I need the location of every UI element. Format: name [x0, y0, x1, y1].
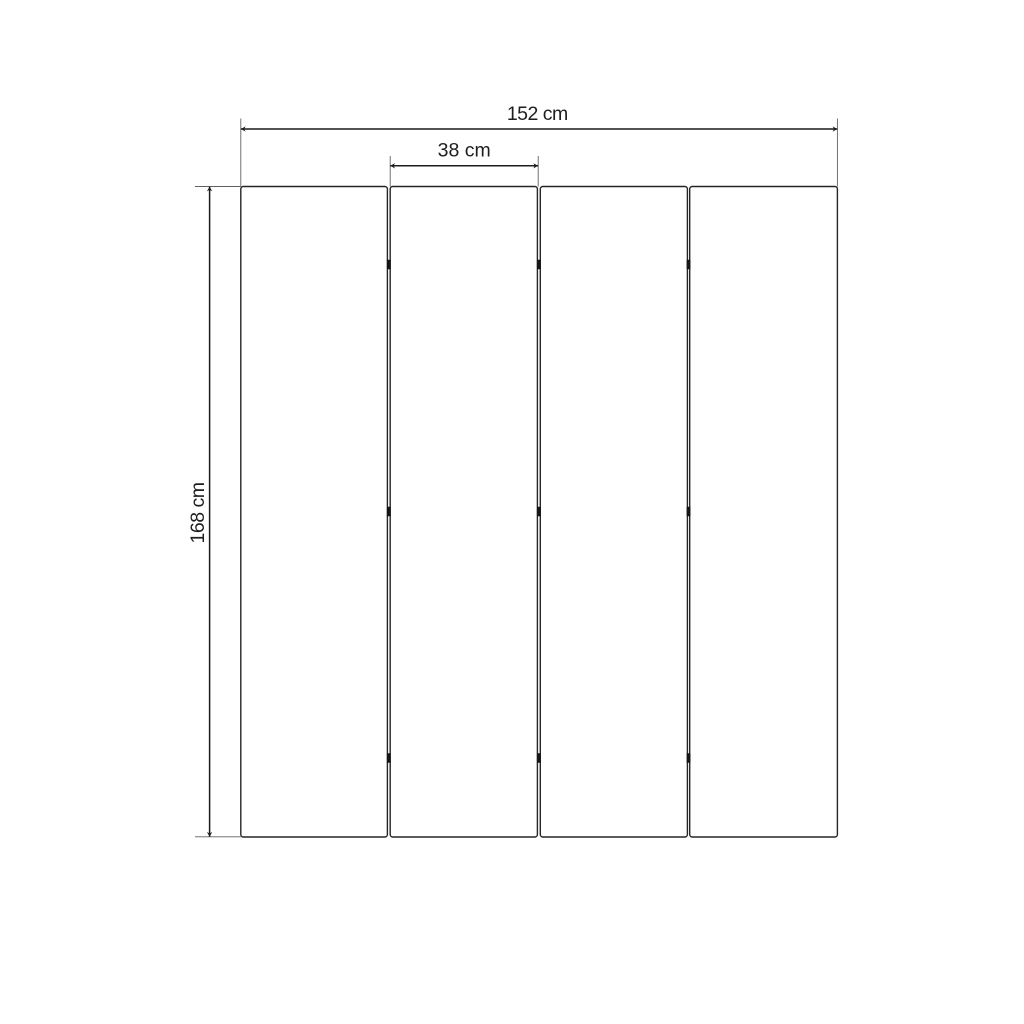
svg-text:168 cm: 168 cm — [187, 483, 209, 544]
svg-text:152 cm: 152 cm — [507, 103, 568, 125]
svg-text:38 cm: 38 cm — [438, 140, 491, 162]
